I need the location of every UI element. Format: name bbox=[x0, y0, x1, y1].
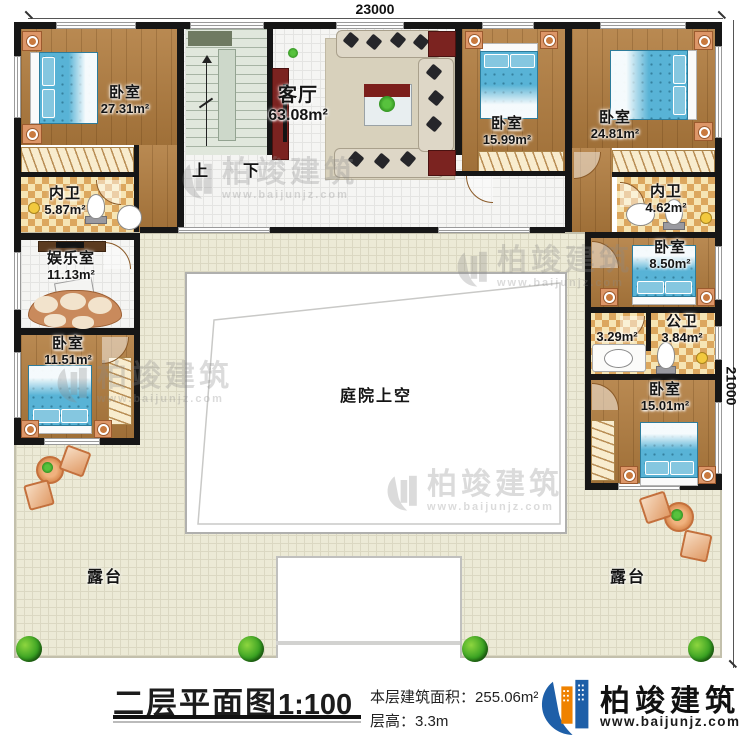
plant-icon bbox=[288, 48, 298, 58]
pillow bbox=[645, 461, 669, 475]
window bbox=[715, 246, 722, 300]
label-bedroom-left: 卧室 11.51m² bbox=[18, 336, 118, 367]
room-name: 卧室 bbox=[565, 110, 665, 127]
closet-bedroom-right2 bbox=[591, 420, 615, 481]
terrace-chair bbox=[679, 529, 712, 562]
floor-drain-icon bbox=[696, 352, 708, 364]
bush-icon bbox=[238, 636, 264, 662]
room-area: 11.13m² bbox=[21, 268, 121, 282]
label-neiwei-left: 内卫 5.87m² bbox=[20, 186, 110, 217]
room-name: 娱乐室 bbox=[21, 251, 121, 268]
pillow bbox=[42, 89, 55, 118]
room-name: 卧室 bbox=[457, 116, 557, 133]
closet-topright bbox=[612, 150, 715, 174]
wall bbox=[585, 232, 722, 238]
bush-icon bbox=[16, 636, 42, 662]
wall bbox=[14, 233, 140, 240]
room-area: 5.87m² bbox=[20, 203, 110, 217]
label-bedroom-right2: 卧室 15.01m² bbox=[615, 382, 715, 413]
window bbox=[715, 46, 722, 138]
room-area: 24.81m² bbox=[565, 127, 665, 141]
room-area: 8.50m² bbox=[625, 257, 715, 271]
sofa-cushion bbox=[72, 316, 94, 329]
tv-icon bbox=[56, 242, 84, 248]
room-area: 63.08m² bbox=[256, 107, 340, 125]
sink bbox=[117, 205, 142, 230]
floor-height-label: 层高： bbox=[370, 713, 415, 730]
brand-logo-icon bbox=[538, 675, 594, 742]
label-gongwei: 公卫 3.84m² bbox=[648, 314, 716, 345]
plant-icon bbox=[671, 509, 683, 521]
floor-height-stat: 层高：3.3m bbox=[370, 710, 448, 731]
railing bbox=[438, 227, 530, 233]
nightstand bbox=[22, 124, 42, 144]
room-area: 27.31m² bbox=[75, 102, 175, 116]
room-name: 客厅 bbox=[256, 86, 340, 107]
pillow bbox=[637, 281, 664, 294]
courtyard: 庭院上空 bbox=[185, 272, 567, 534]
stair-landing bbox=[188, 31, 232, 46]
room-area: 3.84m² bbox=[648, 331, 716, 345]
floor-plan: 23000 21000 庭院上空 bbox=[0, 0, 750, 672]
label-bedroom-right1: 卧室 8.50m² bbox=[625, 240, 715, 271]
room-area: 3.29m² bbox=[586, 330, 648, 344]
sofa-cushion bbox=[44, 314, 66, 327]
nightstand bbox=[21, 420, 39, 438]
closet-bedroom-left bbox=[108, 357, 132, 425]
stair-up-label: 上 bbox=[192, 157, 210, 181]
room-area: 15.01m² bbox=[615, 399, 715, 413]
bush-icon bbox=[462, 636, 488, 662]
wall bbox=[585, 374, 722, 380]
pillow bbox=[61, 409, 88, 423]
wall bbox=[177, 22, 184, 232]
window bbox=[56, 22, 136, 29]
closet-topleft bbox=[21, 147, 134, 173]
corridor-left bbox=[137, 145, 177, 232]
window bbox=[14, 252, 21, 310]
dimension-top: 23000 bbox=[0, 1, 750, 17]
label-entertainment: 娱乐室 11.13m² bbox=[21, 251, 121, 282]
wall bbox=[14, 328, 140, 335]
floor-area-value: 255.06m² bbox=[475, 689, 538, 706]
dimension-right: 21000 bbox=[723, 367, 739, 406]
room-area: 4.62m² bbox=[618, 201, 714, 215]
nightstand bbox=[600, 288, 618, 306]
floor-area-stat: 本层建筑面积：255.06m² bbox=[370, 686, 538, 707]
stair-arrowhead-icon bbox=[202, 55, 212, 63]
dimension-line-right bbox=[733, 20, 734, 668]
label-bedroom-topright: 卧室 24.81m² bbox=[565, 110, 665, 141]
room-name: 卧室 bbox=[625, 240, 715, 257]
nightstand bbox=[94, 420, 112, 438]
dimension-line-top bbox=[28, 18, 723, 19]
label-living: 客厅 63.08m² bbox=[256, 86, 340, 124]
window bbox=[715, 402, 722, 474]
wall bbox=[585, 232, 591, 490]
window bbox=[715, 326, 722, 360]
pillow bbox=[484, 54, 509, 68]
pillow bbox=[673, 86, 686, 115]
pillow bbox=[670, 461, 694, 475]
window bbox=[600, 22, 686, 29]
label-bedroom-topmiddle: 卧室 15.99m² bbox=[457, 116, 557, 147]
nightstand bbox=[22, 31, 42, 51]
nightstand bbox=[697, 288, 715, 306]
window bbox=[336, 22, 404, 29]
pillow bbox=[42, 57, 55, 86]
corner-cabinet bbox=[428, 150, 456, 176]
room-name: 卧室 bbox=[615, 382, 715, 399]
closet-topmiddle bbox=[478, 151, 564, 173]
sofa-cushion bbox=[88, 297, 112, 314]
wall bbox=[21, 172, 137, 177]
toilet bbox=[657, 342, 675, 369]
plant-icon bbox=[379, 96, 395, 112]
bush-icon bbox=[688, 636, 714, 662]
stair-down-label: 下 bbox=[243, 157, 261, 181]
room-name: 卧室 bbox=[18, 336, 118, 353]
terrace-notch-step bbox=[276, 641, 460, 645]
brand-website: www.baijunjz.com bbox=[600, 714, 741, 729]
label-neiwei-right: 内卫 4.62m² bbox=[618, 184, 714, 215]
label-gongwei-ante: 3.29m² bbox=[586, 330, 648, 344]
title-block: 二层平面图1:100 本层建筑面积：255.06m² 层高：3.3m 柏竣建筑 … bbox=[0, 672, 750, 745]
nightstand bbox=[694, 31, 713, 50]
pillow bbox=[665, 281, 692, 294]
room-name: 内卫 bbox=[618, 184, 714, 201]
nightstand bbox=[465, 31, 483, 49]
railing bbox=[178, 227, 270, 233]
title-underline bbox=[113, 715, 361, 719]
label-terrace-right: 露台 bbox=[578, 563, 678, 587]
sink bbox=[604, 349, 633, 368]
sofa-cushion bbox=[60, 293, 86, 310]
room-name: 公卫 bbox=[648, 314, 716, 331]
wall bbox=[134, 233, 140, 445]
room-name: 内卫 bbox=[20, 186, 110, 203]
window bbox=[44, 438, 100, 445]
room-name: 卧室 bbox=[75, 85, 175, 102]
label-bedroom-topleft: 卧室 27.31m² bbox=[75, 85, 175, 116]
corner-cabinet bbox=[428, 31, 456, 57]
room-area: 15.99m² bbox=[457, 133, 557, 147]
room-area: 11.51m² bbox=[18, 353, 118, 367]
label-terrace-left: 露台 bbox=[55, 563, 155, 587]
nightstand bbox=[694, 122, 713, 141]
nightstand bbox=[620, 466, 638, 484]
window bbox=[190, 22, 264, 29]
title-underline-shadow bbox=[113, 721, 361, 723]
nightstand bbox=[698, 466, 716, 484]
floor-area-label: 本层建筑面积： bbox=[370, 689, 475, 706]
nightstand bbox=[540, 31, 558, 49]
sofa-cushion bbox=[34, 296, 58, 313]
window bbox=[482, 22, 534, 29]
pillow bbox=[510, 54, 535, 68]
wall bbox=[585, 307, 722, 313]
courtyard-label: 庭院上空 bbox=[187, 382, 565, 406]
floor-height-value: 3.3m bbox=[415, 713, 448, 730]
wall bbox=[612, 172, 715, 177]
stair-rail bbox=[218, 49, 236, 141]
plant-icon bbox=[42, 462, 53, 473]
pillow bbox=[673, 55, 686, 84]
window bbox=[14, 56, 21, 118]
